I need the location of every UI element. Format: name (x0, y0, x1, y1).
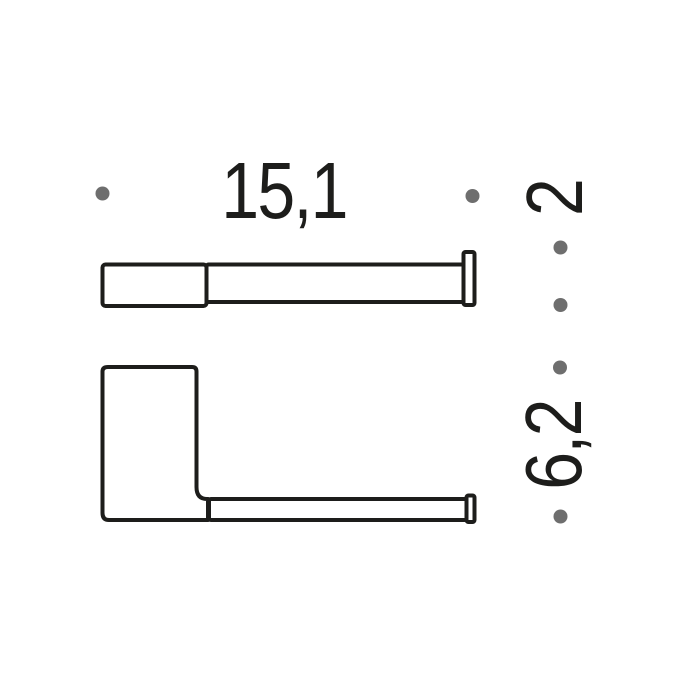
dimension-dot-width-right (466, 189, 480, 203)
height-dimension-label: 6,2 (509, 400, 598, 489)
dimension-dot-height-top (553, 361, 567, 375)
side-view (103, 367, 475, 522)
side-view-wall-bracket (103, 367, 209, 520)
depth-dimension-label: 2 (510, 180, 599, 216)
side-view-end-cap (467, 496, 475, 523)
width-dimension-label: 15,1 (221, 146, 347, 235)
dimension-dot-depth-top (554, 241, 568, 255)
top-view (103, 252, 475, 306)
drawing-canvas: 15,1 2 6,2 (0, 0, 700, 700)
side-view-arm (209, 499, 467, 520)
technical-drawing: 15,1 2 6,2 (0, 0, 700, 700)
top-view-end-cap (464, 252, 475, 305)
dimension-dot-height-bottom (554, 510, 568, 524)
top-view-wall-plate (103, 265, 207, 307)
top-view-bar (207, 265, 464, 303)
dimension-dot-depth-bottom (554, 298, 568, 312)
dimension-dot-width-left (96, 187, 110, 201)
